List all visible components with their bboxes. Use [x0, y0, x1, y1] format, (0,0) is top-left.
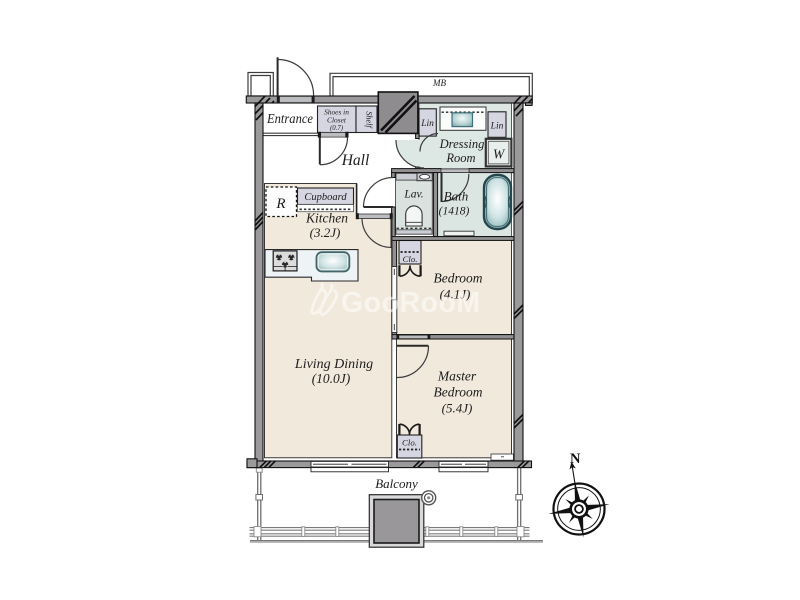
svg-text:Clo.: Clo. — [403, 254, 418, 264]
svg-text:(0.7): (0.7) — [330, 125, 344, 132]
svg-text:Closet: Closet — [327, 116, 347, 125]
svg-text:MB: MB — [432, 78, 446, 88]
svg-text:Master: Master — [437, 369, 477, 384]
svg-text:(1418): (1418) — [439, 206, 470, 218]
svg-text:(10.0J): (10.0J) — [312, 371, 351, 386]
svg-text:Room: Room — [445, 151, 475, 165]
svg-text:Entrance: Entrance — [266, 112, 313, 127]
svg-text:(3.2J): (3.2J) — [310, 225, 341, 240]
svg-text:Bedroom: Bedroom — [434, 271, 483, 286]
svg-text:Clo.: Clo. — [402, 438, 417, 448]
svg-text:Living Dining: Living Dining — [294, 357, 373, 372]
svg-text:Hall: Hall — [341, 152, 370, 169]
svg-text:Bedroom: Bedroom — [434, 385, 483, 400]
svg-text:GooRooM: GooRooM — [341, 287, 481, 319]
svg-text:Cupboard: Cupboard — [304, 192, 347, 203]
svg-text:Lin: Lin — [490, 122, 504, 132]
svg-text:Lin: Lin — [420, 119, 434, 129]
svg-text:Dressing: Dressing — [439, 137, 485, 151]
svg-text:Kitchen: Kitchen — [305, 211, 348, 226]
svg-text:N: N — [570, 451, 581, 467]
svg-text:Balcony: Balcony — [375, 476, 418, 491]
svg-text:Lav.: Lav. — [403, 189, 423, 201]
svg-text:(5.4J): (5.4J) — [442, 401, 473, 416]
svg-text:W: W — [493, 147, 506, 162]
svg-text:R: R — [275, 196, 285, 212]
svg-text:Bath: Bath — [444, 189, 469, 204]
svg-text:Shelf: Shelf — [365, 111, 374, 129]
